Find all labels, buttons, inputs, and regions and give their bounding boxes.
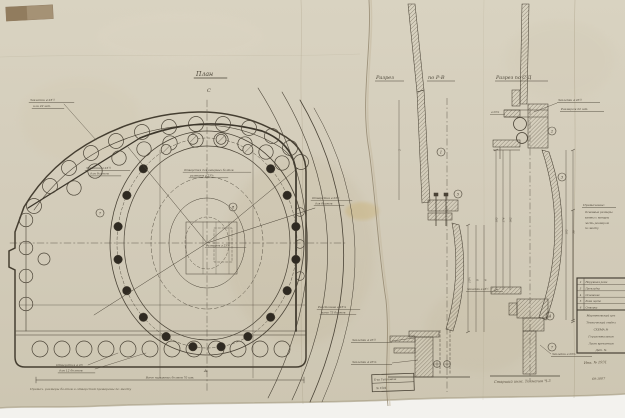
svg-text:1: 1 bbox=[440, 150, 442, 155]
svg-text:⌀ 23⅞: ⌀ 23⅞ bbox=[491, 110, 500, 114]
svg-text:Заклепки ⌀ 23½: Заклепки ⌀ 23½ bbox=[352, 337, 377, 342]
stamp-line1: Б-ка Гипромеза bbox=[373, 377, 397, 382]
stamp-line2: № 1504 bbox=[375, 386, 387, 390]
svg-text:Дет. №: Дет. № bbox=[594, 348, 606, 352]
svg-text:Размером 22 шт.: Размером 22 шт. bbox=[560, 107, 588, 111]
svg-text:Технический отдел: Технический отдел bbox=[586, 321, 616, 325]
inventory-number-1: Инв. № 1931 bbox=[583, 360, 607, 365]
section-rv-title-right: по Р-В bbox=[428, 75, 445, 81]
svg-text:2: 2 bbox=[398, 149, 402, 152]
plan-bottom-dimension-text: Всего наружных болтов 70 шт. bbox=[145, 376, 195, 380]
svg-text:105: 105 bbox=[565, 229, 569, 234]
svg-text:Мартеновский цех: Мартеновский цех bbox=[586, 314, 616, 318]
svg-text:Рама щита: Рама щита bbox=[585, 300, 602, 303]
svg-text:Створка: Створка bbox=[586, 307, 598, 310]
svg-text:СХЕМА №: СХЕМА № bbox=[594, 328, 609, 332]
drawing-scan: План С А. bbox=[0, 0, 625, 418]
svg-text:Основание: Основание bbox=[586, 294, 601, 297]
svg-text:Отверстия ⌀ 23¾: Отверстия ⌀ 23¾ bbox=[312, 195, 340, 200]
svg-text:Заклепки ⌀ 23¾: Заклепки ⌀ 23¾ bbox=[86, 165, 111, 170]
svg-text:174: 174 bbox=[502, 217, 506, 222]
plan-axis-bottom: А. bbox=[203, 368, 208, 373]
inventory-number-2: 69-1007 bbox=[592, 377, 606, 381]
svg-text:Лист крепления: Лист крепления bbox=[587, 342, 613, 346]
tape-patch bbox=[6, 5, 54, 21]
section-rv-title-left: Разрез bbox=[375, 75, 394, 81]
svg-text:размером ⌀ 23⅞: размером ⌀ 23⅞ bbox=[190, 174, 214, 178]
svg-text:2: 2 bbox=[550, 129, 554, 134]
svg-text:или 22 шт.: или 22 шт. bbox=[33, 104, 51, 108]
plan-handwritten-note: Примеч. размеры болтов и отверстий прове… bbox=[29, 387, 131, 391]
svg-text:Горизонтальная: Горизонтальная bbox=[587, 335, 613, 339]
notes-heading: Примечание: bbox=[582, 203, 605, 207]
drawing-canvas: План С А. bbox=[0, 0, 625, 418]
svg-text:Заклепки ⌀ 23⅞: Заклепки ⌀ 23⅞ bbox=[552, 352, 576, 356]
plan-title: План bbox=[195, 71, 213, 78]
svg-text:195: 195 bbox=[495, 217, 499, 222]
svg-text:часть размером: часть размером bbox=[585, 221, 610, 225]
svg-text:38: 38 bbox=[572, 230, 576, 234]
svg-text:Заклепки ⌀ 23⅞: Заклепки ⌀ 23⅞ bbox=[352, 360, 377, 364]
svg-text:взяты с натуры: взяты с натуры bbox=[585, 215, 609, 219]
svg-text:Размером ⌀ 23⅞: Размером ⌀ 23⅞ bbox=[205, 243, 230, 247]
svg-text:всего 75 болтов: всего 75 болтов bbox=[321, 310, 346, 314]
svg-text:Заклепки ⌀ 23½: Заклепки ⌀ 23½ bbox=[30, 97, 55, 102]
svg-text:для 12 болтов: для 12 болтов bbox=[59, 369, 83, 373]
svg-text:Наружная рама: Наружная рама bbox=[585, 281, 608, 284]
svg-text:Прокладка: Прокладка bbox=[585, 287, 601, 290]
svg-text:Основные размеры: Основные размеры bbox=[585, 210, 613, 214]
svg-text:162: 162 bbox=[509, 217, 513, 222]
svg-text:по месту: по месту bbox=[585, 226, 599, 230]
svg-text:для болтов: для болтов bbox=[315, 201, 333, 205]
svg-text:Отверстия для анкерных болтов: Отверстия для анкерных болтов bbox=[184, 168, 234, 172]
svg-text:2: 2 bbox=[579, 281, 582, 284]
svg-text:Расстояние ⌀ 23⅞: Расстояние ⌀ 23⅞ bbox=[317, 305, 346, 309]
svg-text:4: 4 bbox=[548, 314, 552, 319]
plan-axis-top: С bbox=[207, 88, 211, 94]
svg-text:для болтов: для болтов bbox=[90, 172, 109, 176]
svg-text:Заклепки ⌀ 23½: Заклепки ⌀ 23½ bbox=[558, 97, 583, 102]
svg-text:Отверстия ⌀ 23: Отверстия ⌀ 23 bbox=[56, 363, 83, 367]
